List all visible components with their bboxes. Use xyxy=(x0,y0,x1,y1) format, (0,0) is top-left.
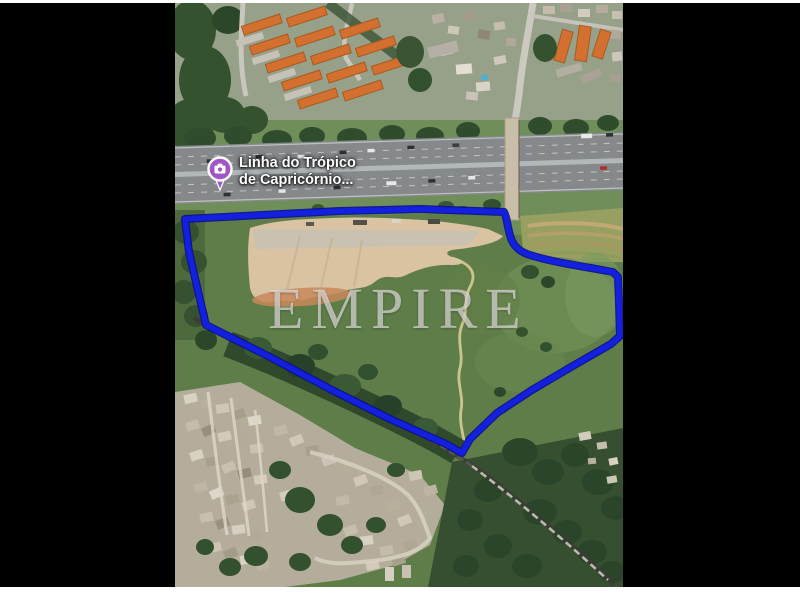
satellite-map-image: Linha do Trópico de Capricórnio... EMPIR… xyxy=(175,3,623,587)
satellite-scene xyxy=(175,3,623,587)
letterbox-right-bar xyxy=(623,3,800,587)
overpass-bridge xyxy=(505,118,519,220)
listing-image: Linha do Trópico de Capricórnio... EMPIR… xyxy=(0,0,800,600)
letterbox-left-bar xyxy=(0,3,175,587)
